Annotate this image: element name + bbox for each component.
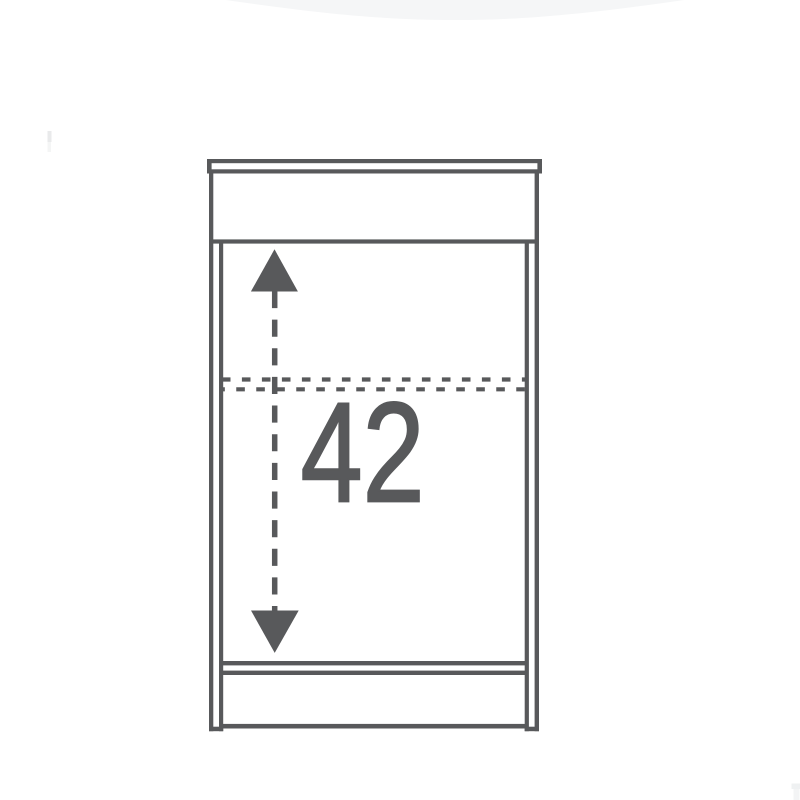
svg-text:42: 42 bbox=[301, 373, 425, 532]
